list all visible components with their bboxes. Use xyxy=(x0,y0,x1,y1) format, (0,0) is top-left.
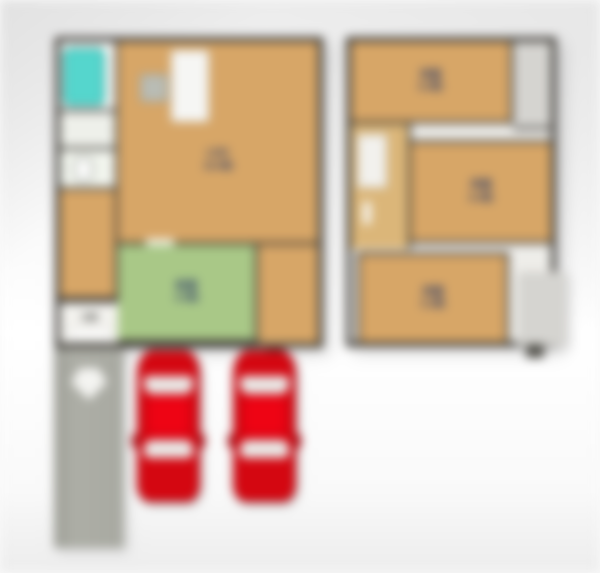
room-name: 洋室 xyxy=(411,179,551,193)
room-bedroom-top: 洋室 6.0帖 xyxy=(351,42,513,124)
room-size: 4.5帖 xyxy=(118,293,255,306)
car-right xyxy=(233,350,296,502)
room-tatami: 和室 4.5帖 xyxy=(118,245,258,343)
kitchen-sink-icon xyxy=(140,74,168,102)
room-name: 洋室 xyxy=(360,285,506,299)
car-left xyxy=(137,350,200,502)
washroom xyxy=(60,112,118,150)
left-wing: 玄関 LDK 16.0帖 和室 4.5帖 xyxy=(55,37,323,348)
room-bedroom-bottom: 洋室 5.2帖 xyxy=(357,252,509,342)
car-rear-window xyxy=(240,440,289,458)
car-mirror-icon xyxy=(294,434,301,448)
room-size: 6.0帖 xyxy=(351,82,510,95)
bathtub-icon xyxy=(63,48,105,106)
closet-top xyxy=(513,42,551,130)
room-bedroom-top-label: 洋室 6.0帖 xyxy=(351,68,510,94)
car-mirror-icon xyxy=(228,434,235,448)
entrance-hall: 玄関 xyxy=(60,300,122,343)
approach-path xyxy=(54,348,124,548)
floor-plan-viewport: 玄関 LDK 16.0帖 和室 4.5帖 xyxy=(0,0,600,573)
inner-hallway xyxy=(60,190,118,300)
room-bedroom-mid: 洋室 6.0帖 xyxy=(411,140,551,244)
entrance-step xyxy=(68,329,112,340)
room-bedroom-mid-label: 洋室 6.0帖 xyxy=(411,179,551,205)
room-size: 5.2帖 xyxy=(360,299,506,312)
entrance-arrow-icon xyxy=(71,368,107,400)
room-name: 和室 xyxy=(118,279,255,293)
room-ldk-label: LDK 16.0帖 xyxy=(118,147,318,173)
side-terrace xyxy=(518,272,566,346)
room-tatami-label: 和室 4.5帖 xyxy=(118,279,255,305)
bathroom xyxy=(60,42,118,112)
car-roof xyxy=(242,396,287,436)
room-bedroom-bottom-label: 洋室 5.2帖 xyxy=(360,285,506,311)
toilet-room xyxy=(60,150,118,190)
car-windshield xyxy=(240,376,289,394)
entrance-label: 玄関 xyxy=(82,313,98,322)
car-mirror-icon xyxy=(132,434,139,448)
kitchen-counter-icon xyxy=(171,50,209,122)
hallway xyxy=(351,124,411,249)
hall-closet xyxy=(357,134,387,188)
room-name: LDK xyxy=(118,147,318,161)
room-size: 6.0帖 xyxy=(411,193,551,206)
door-mark xyxy=(363,202,371,224)
car-mirror-icon xyxy=(198,434,205,448)
car-roof xyxy=(146,396,191,436)
room-name: 洋室 xyxy=(351,68,510,82)
toilet-icon xyxy=(74,157,93,182)
water-heater-unit xyxy=(526,344,544,358)
room-ldk: LDK 16.0帖 xyxy=(118,42,318,245)
room-size: 16.0帖 xyxy=(118,161,318,174)
floor-plan-scene: 玄関 LDK 16.0帖 和室 4.5帖 xyxy=(0,0,600,573)
car-rear-window xyxy=(144,440,193,458)
car-windshield xyxy=(144,376,193,394)
